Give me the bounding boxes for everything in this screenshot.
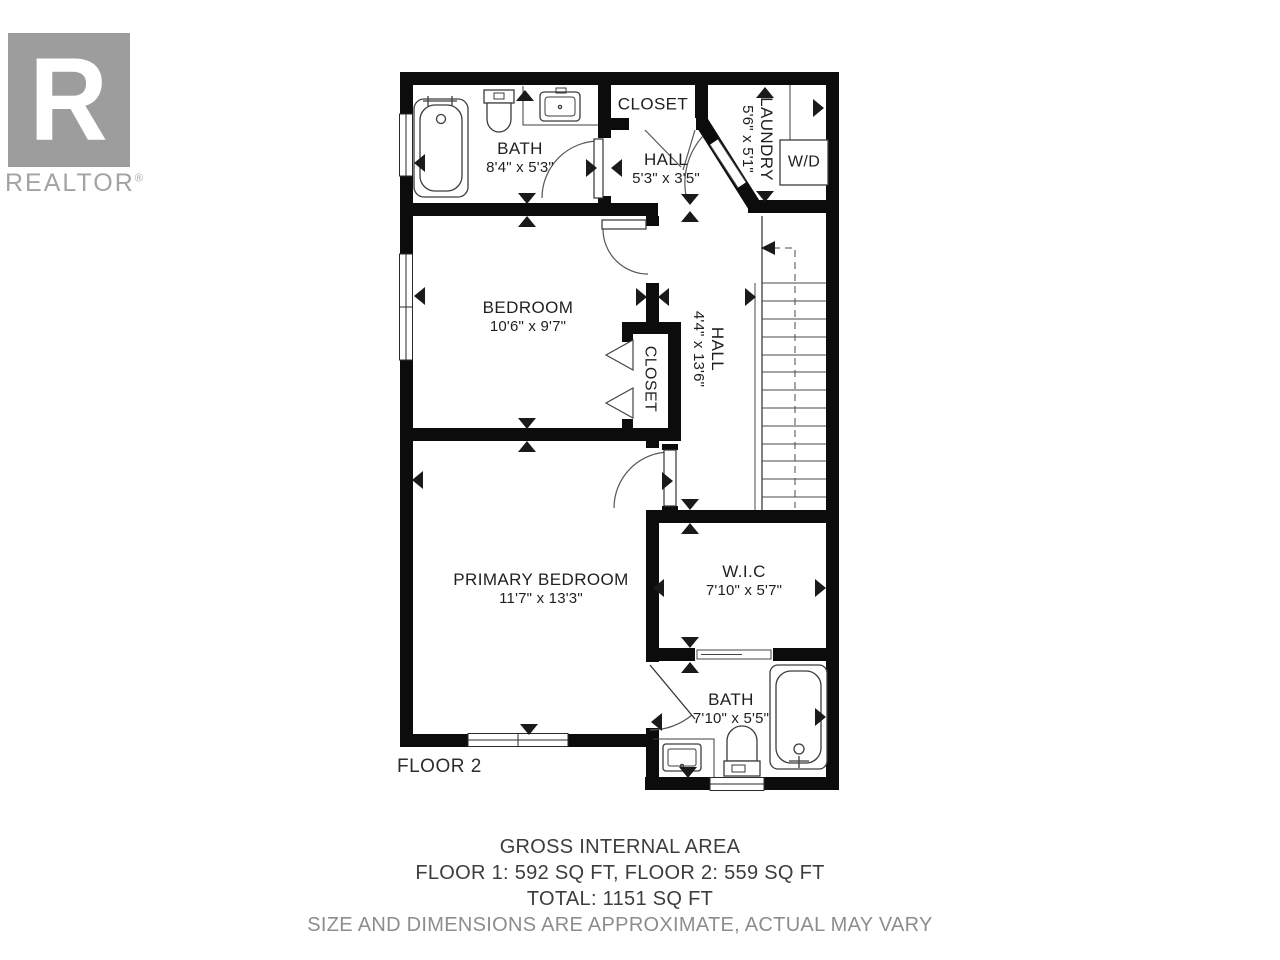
floor-plan-page: R REALTOR® bbox=[0, 0, 1280, 960]
gross-area-title: GROSS INTERNAL AREA bbox=[0, 834, 1240, 860]
room-label-wic: W.I.C 7'10" x 5'7" bbox=[706, 562, 782, 600]
room-label-closet-mid: CLOSET bbox=[641, 346, 660, 412]
disclaimer: SIZE AND DIMENSIONS ARE APPROXIMATE, ACT… bbox=[0, 912, 1240, 938]
room-label-closet-top: CLOSET bbox=[618, 95, 688, 114]
room-label-bedroom: BEDROOM 10'6" x 9'7" bbox=[483, 298, 574, 336]
toilet-ensuite bbox=[724, 726, 760, 776]
stairs-arrow-icon bbox=[761, 241, 775, 255]
door-bedroom bbox=[602, 220, 648, 274]
sink-top bbox=[523, 86, 598, 125]
total-area-line: TOTAL: 1151 SQ FT bbox=[0, 886, 1240, 912]
room-label-bath-ensuite: BATH 7'10" x 5'5" bbox=[693, 690, 769, 728]
room-label-bath2: BATH 8'4" x 5'3" bbox=[486, 139, 554, 177]
pocket-door bbox=[697, 650, 771, 659]
room-label-primary: PRIMARY BEDROOM 11'7" x 13'3" bbox=[453, 570, 628, 608]
room-label-hall-main: HALL 4'4" x 13'6" bbox=[689, 311, 727, 387]
door-closet-bifold bbox=[606, 340, 633, 418]
washer-dryer-label: W/D bbox=[788, 153, 820, 172]
room-label-hall-top: HALL 5'3" x 3'5" bbox=[632, 150, 700, 188]
toilet-top bbox=[484, 90, 514, 132]
bathtub-top bbox=[414, 96, 468, 197]
room-label-laundry: LAUNDRY 5'6" x 5'1" bbox=[738, 97, 776, 181]
stairs bbox=[755, 216, 826, 510]
footer: GROSS INTERNAL AREA FLOOR 1: 592 SQ FT, … bbox=[0, 834, 1240, 938]
floor-plan-drawing bbox=[0, 0, 1280, 960]
floors-area-line: FLOOR 1: 592 SQ FT, FLOOR 2: 559 SQ FT bbox=[0, 860, 1240, 886]
stairs-direction-line bbox=[761, 241, 795, 508]
floor-label: FLOOR 2 bbox=[397, 756, 482, 778]
